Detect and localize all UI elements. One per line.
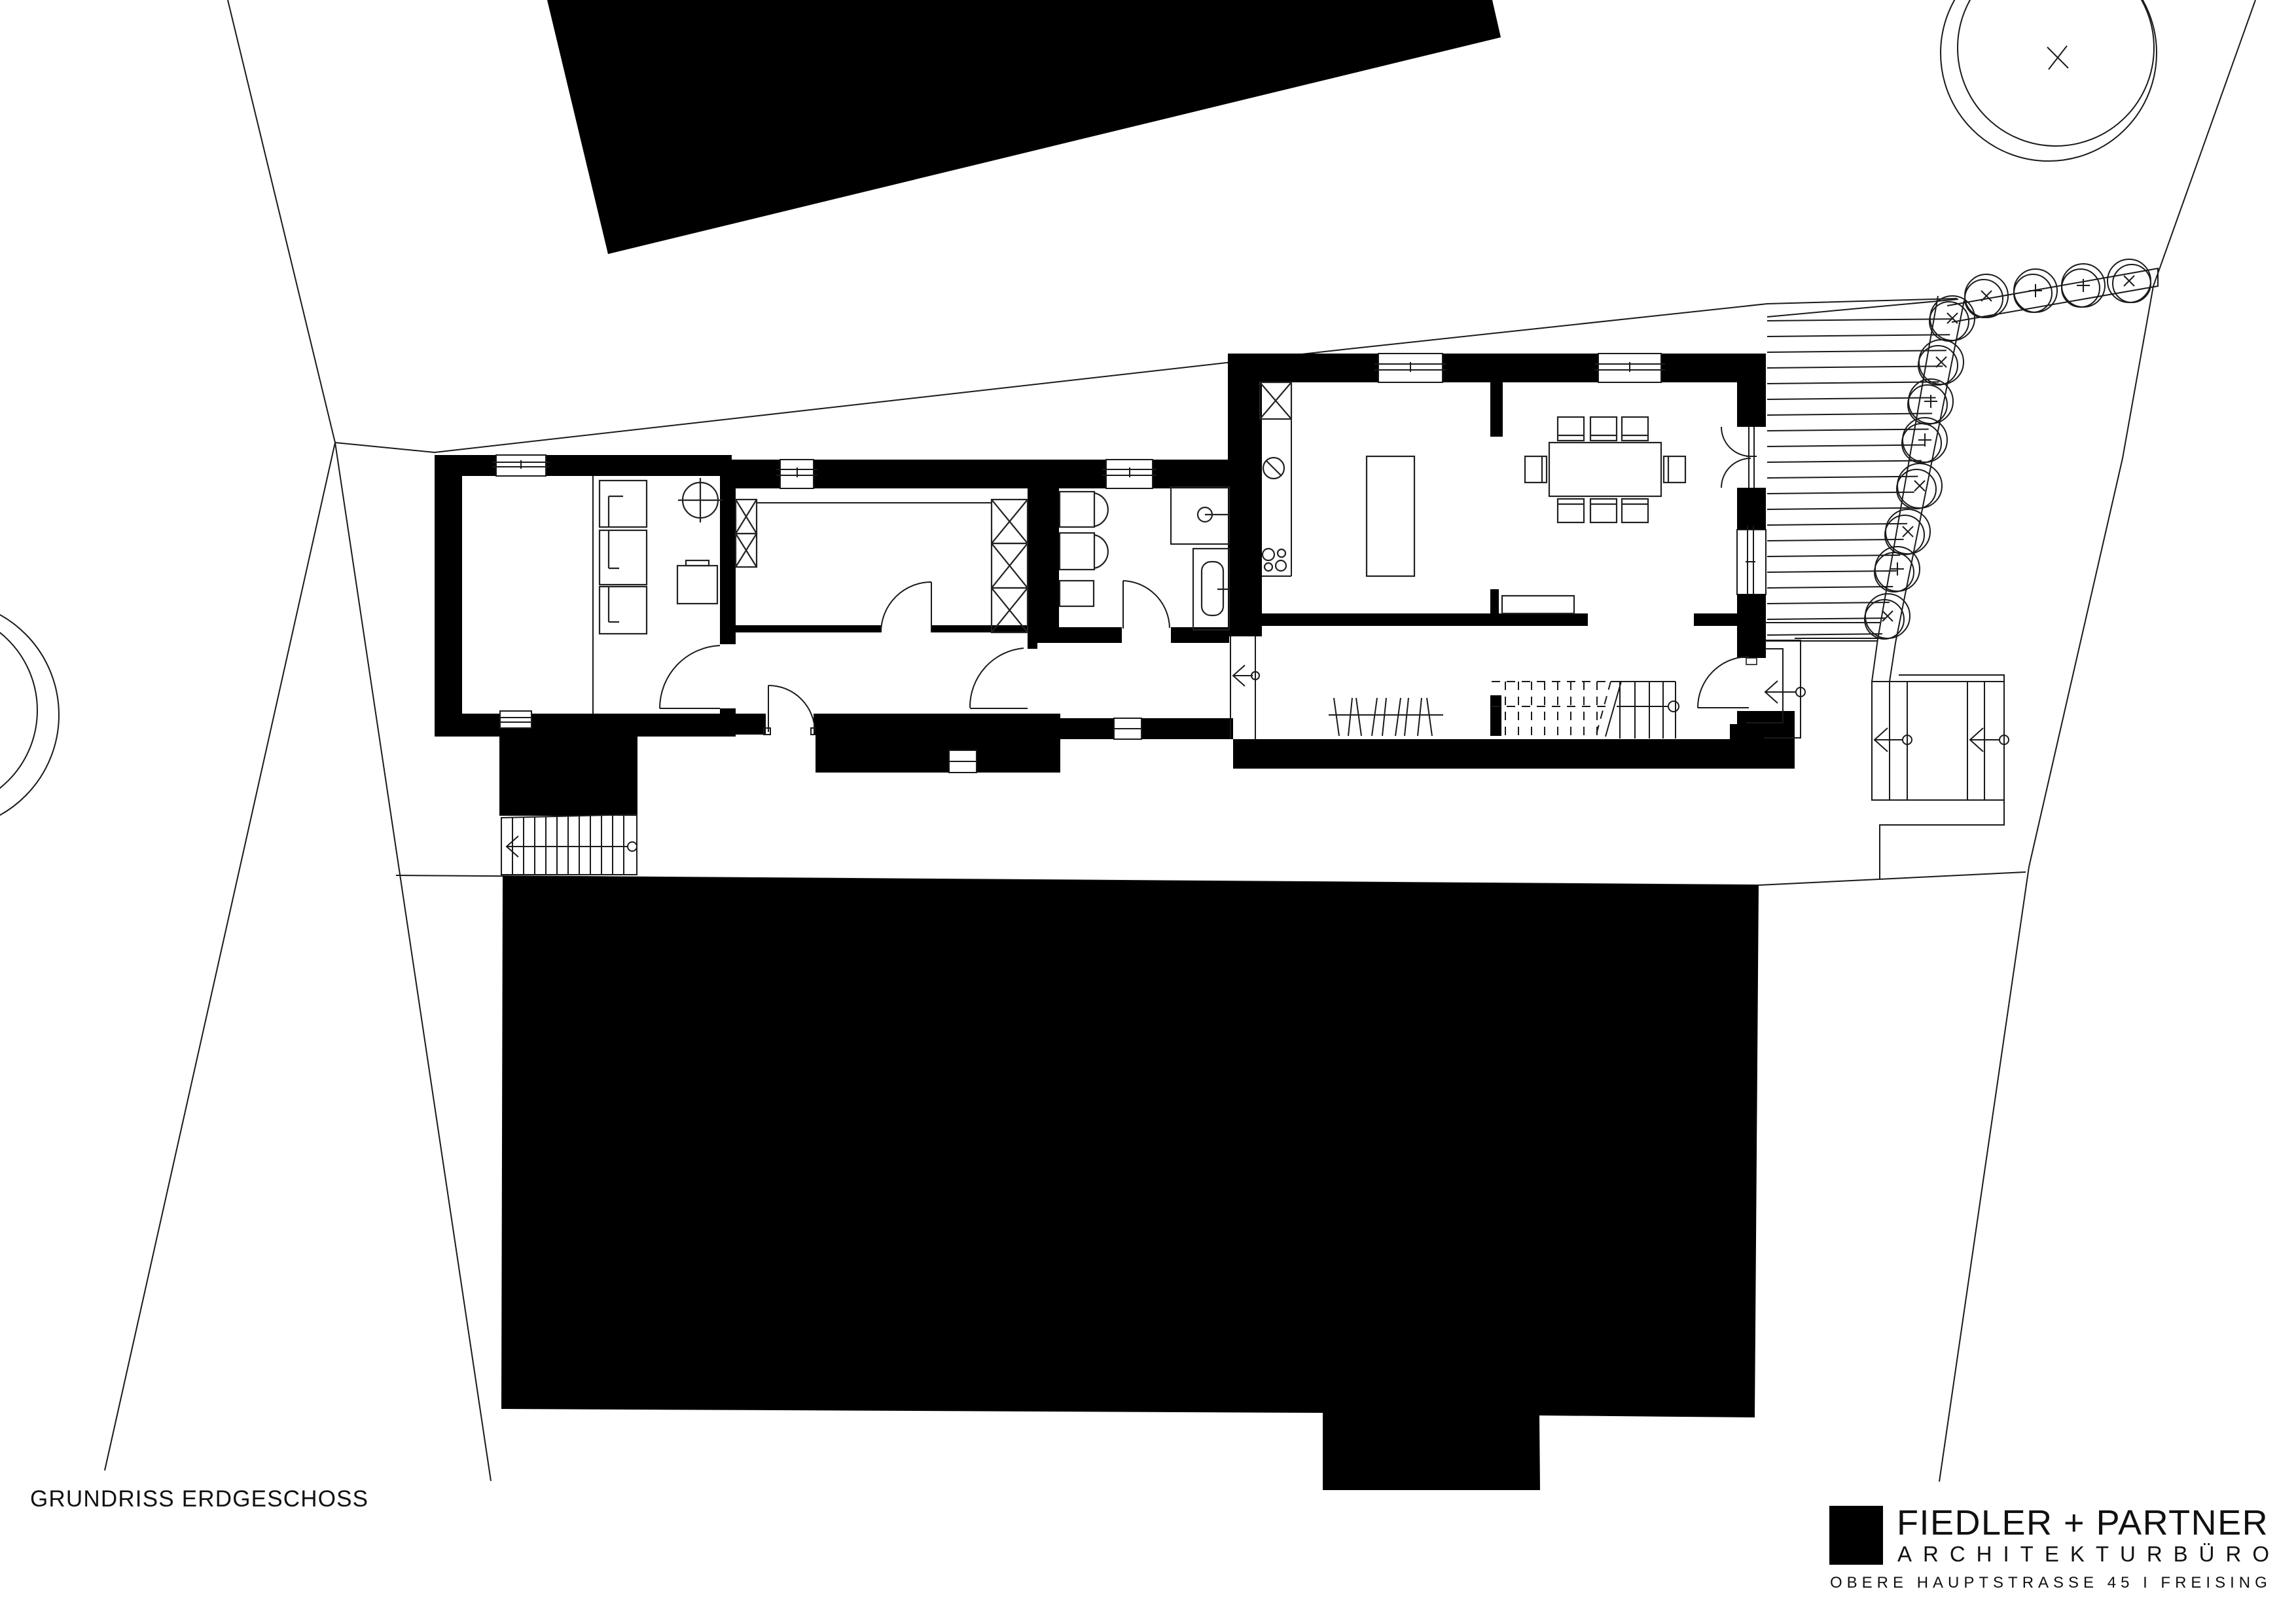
svg-text:FIEDLER + PARTNER: FIEDLER + PARTNER [1897, 1503, 2269, 1542]
svg-text:OBERE HAUPTSTRASSE 45 I FREISI: OBERE HAUPTSTRASSE 45 I FREISING [1830, 1574, 2272, 1592]
svg-text:ARCHITEKTURBÜRO: ARCHITEKTURBÜRO [1897, 1542, 2280, 1566]
svg-text:GRUNDRISS ERDGESCHOSS: GRUNDRISS ERDGESCHOSS [30, 1486, 368, 1512]
